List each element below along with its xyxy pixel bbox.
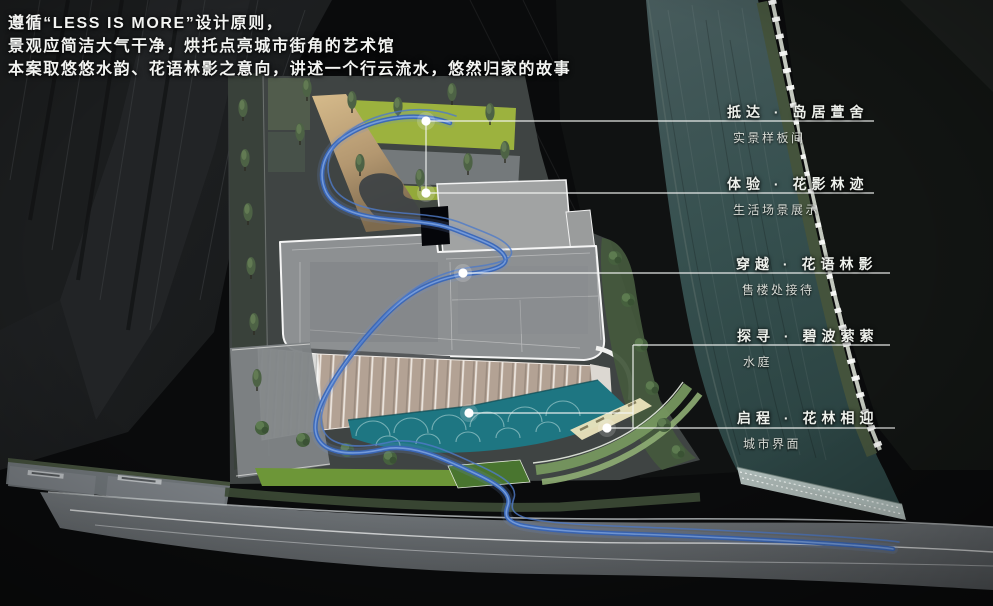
annotation-departure: 启程 · 花林相迎 城市界面 xyxy=(737,408,878,452)
annotation-title: 穿越 · 花语林影 xyxy=(736,254,877,274)
design-statement-line: 本案取悠悠水韵、花语林影之意向，讲述一个行云流水，悠然归家的故事 xyxy=(8,58,571,81)
annotation-explore: 探寻 · 碧波萦萦 水庭 xyxy=(737,326,878,370)
annotation-title: 体验 · 花影林迹 xyxy=(727,174,868,194)
annotation-subtitle: 城市界面 xyxy=(737,435,878,452)
annotation-title: 抵达 · 岛居萱舍 xyxy=(727,102,868,122)
annotation-subtitle: 售楼处接待 xyxy=(736,281,877,298)
design-statement-line: 景观应简洁大气干净，烘托点亮城市街角的艺术馆 xyxy=(8,35,571,58)
annotation-title: 探寻 · 碧波萦萦 xyxy=(737,326,878,346)
annotation-subtitle: 实景样板间 xyxy=(727,129,868,146)
annotation-traverse: 穿越 · 花语林影 售楼处接待 xyxy=(736,254,877,298)
site-plan-rendering xyxy=(0,0,993,606)
masterplan-diagram: 遵循“LESS IS MORE”设计原则， 景观应简洁大气干净，烘托点亮城市街角… xyxy=(0,0,993,606)
vignette xyxy=(0,0,993,606)
annotation-experience: 体验 · 花影林迹 生活场景展示 xyxy=(727,174,868,218)
design-statement: 遵循“LESS IS MORE”设计原则， 景观应简洁大气干净，烘托点亮城市街角… xyxy=(8,12,571,81)
design-statement-line: 遵循“LESS IS MORE”设计原则， xyxy=(8,12,571,35)
annotation-subtitle: 水庭 xyxy=(737,353,878,370)
annotation-title: 启程 · 花林相迎 xyxy=(737,408,878,428)
annotation-arrival: 抵达 · 岛居萱舍 实景样板间 xyxy=(727,102,868,146)
annotation-subtitle: 生活场景展示 xyxy=(727,201,868,218)
